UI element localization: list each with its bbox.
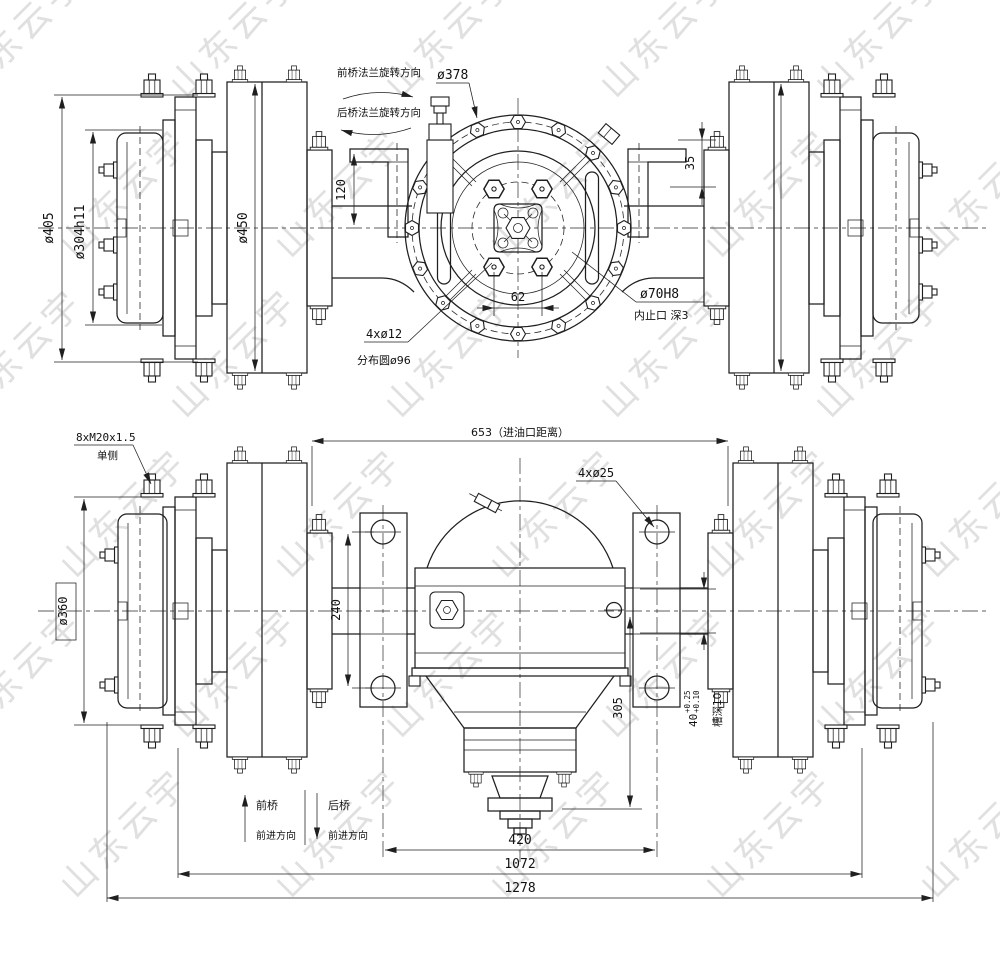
label-spigot-dia: ø70H8 <box>640 287 679 302</box>
watermark-text: 山东云宇 <box>162 281 307 426</box>
dim-groove-tol-upper: +0.25 <box>683 690 692 713</box>
dim-mounting-span: 1072 <box>504 857 535 872</box>
dim-bolt-spacing: 62 <box>511 290 525 304</box>
dim-housing-diameter: ø450 <box>236 212 251 243</box>
dim-step: 35 <box>683 156 697 170</box>
watermark-text: 山东云宇 <box>377 0 522 106</box>
flange-bolt-icon <box>549 121 568 139</box>
label-rear-rotation: 后桥法兰旋转方向 <box>337 106 421 119</box>
flange-bolt-icon <box>549 317 568 335</box>
dim-groove-tol-lower: +0.10 <box>692 690 701 713</box>
dim-overall-width: 1278 <box>504 881 535 896</box>
dim-drum-diameter: ø405 <box>42 212 57 243</box>
label-front-rotation: 前桥法兰旋转方向 <box>337 66 421 79</box>
dim-hub-diameter: ø304h11 <box>73 205 88 260</box>
drawing-page: 山东云宇山东云宇山东云宇山东云宇山东云宇山东云宇山东云宇山东云宇山东云宇山东云宇… <box>0 0 1000 974</box>
label-wheel-studs: 8xM20x1.5 <box>76 431 136 444</box>
label-flange-holes: 4xø12 <box>366 327 402 341</box>
flange-bolt-icon <box>511 116 526 129</box>
dim-groove-tolerance: 40 +0.25 +0.10 <box>683 690 701 727</box>
watermark-text: 山东云宇 <box>912 441 1000 586</box>
dim-bracket-hole-spacing: 240 <box>329 599 343 621</box>
flange-bolt-icon <box>618 221 631 236</box>
oil-fill-plug <box>436 601 458 620</box>
bottom-view-axle-plan: 8xM20x1.5 单侧 ø360 653（进油口距离） 4xø25 240 3… <box>38 425 990 902</box>
dim-oil-inlet-distance: 653（进油口距离） <box>471 425 569 439</box>
watermark-text: 山东云宇 <box>482 121 627 266</box>
label-flange-holes-circle: 分布圆ø96 <box>357 354 411 367</box>
dim-bracket-span: 420 <box>508 833 531 848</box>
watermark-text: 山东云宇 <box>52 761 197 906</box>
label-front-direction: 前进方向 <box>256 829 296 842</box>
flange-bolt-icon <box>411 259 429 278</box>
label-rear-axle: 后桥 <box>328 799 350 812</box>
dim-carrier-depth: 305 <box>611 697 625 719</box>
flange-bolt-icon <box>607 259 625 278</box>
watermark-text: 山东云宇 <box>697 761 842 906</box>
top-view-dimensions: ø405 ø304h11 ø450 120 35 62 ø378 前桥法兰旋转方… <box>42 66 716 367</box>
watermark-text: 山东云宇 <box>592 281 737 426</box>
watermark-text: 山东云宇 <box>0 601 92 746</box>
label-groove-depth: 槽深10 <box>712 693 724 727</box>
center-nut <box>506 218 530 239</box>
watermark-text: 山东云宇 <box>592 0 737 106</box>
dim-groove-width: 40 <box>687 714 700 727</box>
watermark-layer: 山东云宇山东云宇山东云宇山东云宇山东云宇山东云宇山东云宇山东云宇山东云宇山东云宇… <box>0 0 1000 906</box>
label-wheel-studs-note: 单侧 <box>97 449 118 462</box>
watermark-text: 山东云宇 <box>162 0 307 106</box>
flange-bolt-icon <box>411 178 429 197</box>
label-rear-direction: 前进方向 <box>328 829 368 842</box>
dim-brake-drum-dia: ø360 <box>56 597 70 626</box>
dim-bracket-height: 120 <box>334 179 348 201</box>
dome-breather <box>467 490 504 515</box>
watermark-text: 山东云宇 <box>0 0 92 106</box>
label-bracket-holes: 4xø25 <box>578 466 614 480</box>
flange-bolt-icon <box>583 293 603 313</box>
label-spigot-note: 内止口 深3 <box>634 308 689 322</box>
flange-bolt-icon <box>511 328 526 341</box>
flange-bolt-icon <box>607 178 625 197</box>
breather-valve <box>427 97 453 213</box>
watermark-text: 山东云宇 <box>0 281 92 426</box>
watermark-text: 山东云宇 <box>912 761 1000 906</box>
label-front-axle: 前桥 <box>256 798 278 812</box>
label-flange-bolt-circle: ø378 <box>437 68 468 83</box>
flange-bolt-icon <box>406 221 419 236</box>
top-view-axle-rear-elevation: ø405 ø304h11 ø450 120 35 62 ø378 前桥法兰旋转方… <box>38 66 990 389</box>
watermark-text: 山东云宇 <box>807 281 952 426</box>
axle-engineering-drawing: 山东云宇山东云宇山东云宇山东云宇山东云宇山东云宇山东云宇山东云宇山东云宇山东云宇… <box>0 0 1000 974</box>
flange-bolt-icon <box>468 121 487 139</box>
watermark-text: 山东云宇 <box>482 441 627 586</box>
